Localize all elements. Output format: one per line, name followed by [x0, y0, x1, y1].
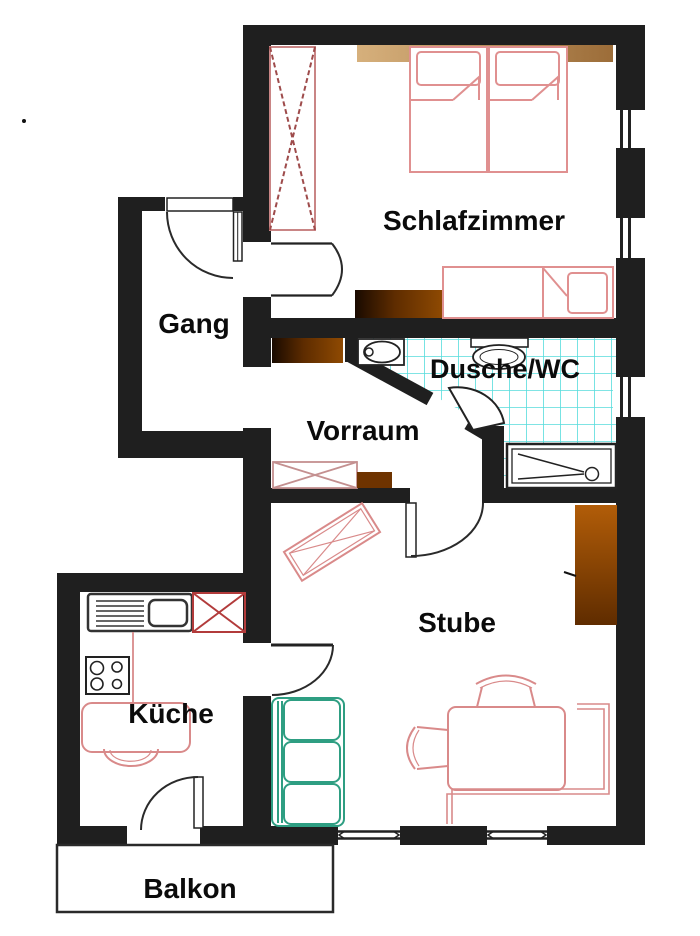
vorraum-sideboard	[273, 462, 357, 488]
vorraum-shelf	[272, 338, 343, 363]
vorraum-box	[357, 472, 392, 488]
kitchen-door	[271, 645, 333, 695]
label-dusche-wc: Dusche/WC	[430, 354, 580, 384]
floor-plan: Schlafzimmer Gang Dusche/WC Vorraum Stub…	[0, 0, 700, 936]
wall-spine-mid	[243, 428, 271, 643]
dining-chair-top	[476, 676, 536, 708]
single-bed	[443, 267, 613, 318]
window-bedroom-2	[613, 218, 648, 258]
kitchen-cabinet-x	[193, 593, 245, 632]
label-stube: Stube	[418, 607, 496, 638]
kitchen-furniture	[82, 593, 245, 766]
balcony-door	[127, 777, 203, 845]
wall-kitchen-left	[57, 573, 80, 845]
entrance-door	[165, 197, 242, 278]
stube-cabinet	[564, 505, 617, 625]
label-schlafzimmer: Schlafzimmer	[383, 205, 565, 236]
wall-bedroom-bottom	[243, 318, 645, 338]
label-balkon: Balkon	[143, 873, 236, 904]
floor-plan-page: Schlafzimmer Gang Dusche/WC Vorraum Stub…	[0, 0, 700, 936]
label-vorraum: Vorraum	[306, 415, 419, 446]
label-kueche: Küche	[128, 698, 214, 729]
stube-door	[406, 503, 483, 557]
sink	[358, 339, 404, 365]
dining-table	[448, 707, 565, 790]
window-stube-1	[338, 826, 400, 845]
stube-bench-rotated	[284, 503, 380, 581]
wall-spine-upper	[243, 318, 271, 367]
dining-chair-left	[407, 727, 448, 769]
wall-stube-top-left	[271, 488, 410, 503]
stube-furniture	[272, 503, 617, 826]
stray-dot	[22, 119, 26, 123]
shower	[507, 444, 616, 488]
bedroom-furniture	[270, 45, 613, 318]
window-bedroom-1	[613, 110, 648, 148]
window-stube-2	[487, 826, 547, 845]
wall-spine-lower	[243, 696, 271, 845]
nightstand	[355, 290, 443, 318]
wardrobe	[270, 47, 315, 230]
couch	[272, 698, 344, 826]
bedroom-door	[243, 242, 342, 297]
stove	[86, 657, 129, 694]
window-bathroom	[613, 377, 648, 417]
label-gang: Gang	[158, 308, 230, 339]
wall-kitchen-top	[57, 573, 247, 592]
double-bed	[410, 47, 567, 172]
kitchen-sink-unit	[88, 594, 192, 631]
wall-bedroom-top	[243, 25, 645, 45]
wall-gang-bottom	[118, 431, 245, 458]
dining-set	[407, 676, 609, 825]
wall-gang-left	[118, 197, 142, 458]
